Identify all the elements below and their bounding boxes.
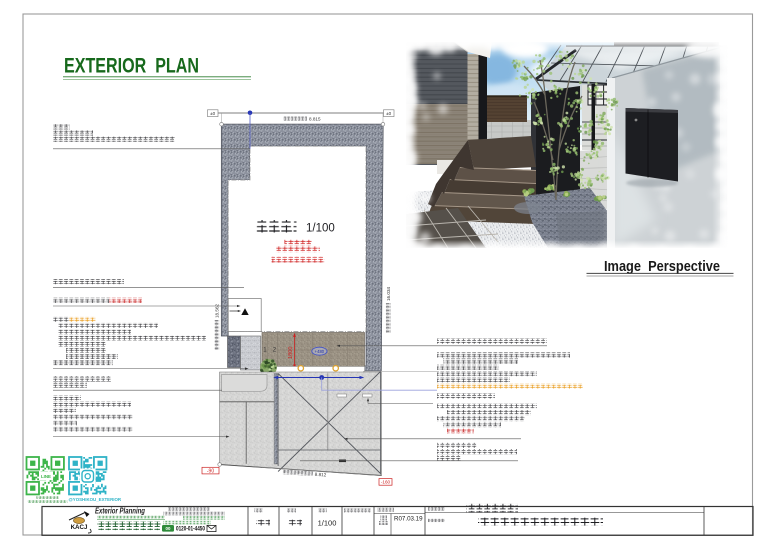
svg-text:16.034: 16.034 [386,287,391,301]
svg-text:@YOSHIKOU_EXTERIOR: @YOSHIKOU_EXTERIOR [69,497,122,502]
svg-text:1800: 1800 [288,347,294,359]
svg-text:LINE: LINE [41,474,51,479]
svg-text:1/100: 1/100 [306,223,335,235]
svg-text:+480: +480 [315,349,325,354]
svg-text:±0: ±0 [386,111,392,116]
svg-text:Image Perspective: Image Perspective [604,258,720,275]
svg-text:8.812: 8.812 [315,472,327,478]
svg-text:-160: -160 [381,480,391,485]
svg-text:±0: ±0 [210,111,216,116]
svg-text:00: 00 [166,526,171,531]
svg-text:R07.03.19: R07.03.19 [394,515,423,522]
svg-text:18.562: 18.562 [215,304,220,318]
svg-text:1/100: 1/100 [318,519,337,528]
svg-text:0120-01-4450: 0120-01-4450 [176,526,205,533]
svg-text:-90: -90 [207,468,214,474]
svg-text:Exterior Planning: Exterior Planning [95,506,145,516]
svg-text:8.815: 8.815 [309,117,321,122]
svg-text:KACJ: KACJ [71,524,88,531]
svg-text:EXTERIOR PLAN: EXTERIOR PLAN [64,55,199,78]
